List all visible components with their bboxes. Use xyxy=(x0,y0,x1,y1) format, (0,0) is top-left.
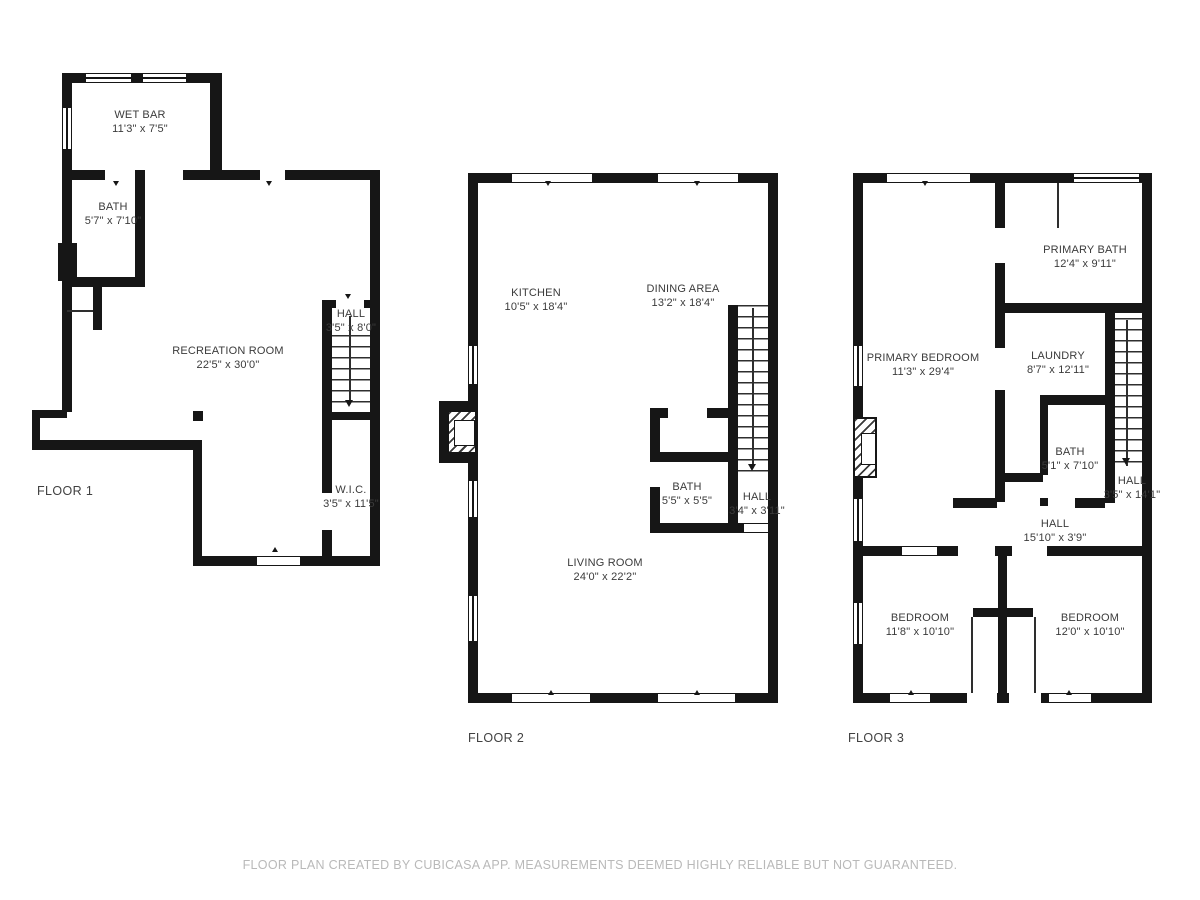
wall xyxy=(592,173,658,183)
room-dims: 5'5" x 5'5" xyxy=(662,495,712,507)
door-opening xyxy=(257,556,300,566)
chimney-floor1 xyxy=(58,243,77,281)
room-dims: 3'5" x 8'0" xyxy=(326,322,376,334)
wall xyxy=(995,173,1005,228)
stair-arrow-icon xyxy=(345,400,353,407)
room-dims: 13'2" x 18'4" xyxy=(652,297,715,309)
wall xyxy=(62,83,72,107)
room-dims: 24'0" x 22'2" xyxy=(574,571,637,583)
wall xyxy=(590,693,658,703)
door-tick xyxy=(272,547,278,552)
room-label-dining-area: DINING AREA13'2" x 18'4" xyxy=(646,282,719,310)
window xyxy=(468,345,478,385)
wall xyxy=(468,518,478,595)
fireplace-floor2 xyxy=(439,401,475,463)
stair-arrow-icon xyxy=(1122,458,1130,465)
door-tick xyxy=(548,690,554,695)
door-tick xyxy=(922,181,928,186)
wall xyxy=(970,173,1073,183)
wall xyxy=(768,173,778,703)
room-name: WET BAR xyxy=(114,109,165,121)
window xyxy=(468,595,478,642)
wall xyxy=(995,303,1152,313)
door-tick xyxy=(113,181,119,186)
window xyxy=(853,498,863,542)
closet-line xyxy=(971,617,973,693)
room-dims: 11'3" x 29'4" xyxy=(892,366,954,378)
floor-3-label: FLOOR 3 xyxy=(848,731,904,745)
door-opening xyxy=(744,523,768,533)
wall xyxy=(322,530,332,566)
wall xyxy=(1040,395,1115,405)
window xyxy=(62,107,72,150)
fireplace-floor3 xyxy=(853,417,877,478)
room-dims: 15'10" x 3'9" xyxy=(1024,532,1087,544)
room-dims: 3'5" x 14'1" xyxy=(1104,489,1161,501)
wall xyxy=(853,546,902,556)
wall xyxy=(300,556,380,566)
window xyxy=(1073,173,1140,183)
wall xyxy=(132,73,142,83)
staircase-floor3 xyxy=(1115,318,1142,472)
door-tick xyxy=(908,690,914,695)
wall xyxy=(973,608,1033,617)
window xyxy=(468,480,478,518)
wall xyxy=(953,498,997,508)
wall xyxy=(937,546,958,556)
door-tick xyxy=(266,181,272,186)
room-label-wic: W.I.C.3'5" x 11'5" xyxy=(323,483,379,511)
door-tick xyxy=(694,690,700,695)
room-name: HALL xyxy=(743,491,771,503)
room-dims: 5'1" x 7'10" xyxy=(1042,460,1099,472)
room-name: BATH xyxy=(98,201,127,213)
door-line xyxy=(67,310,93,312)
wall xyxy=(650,452,738,462)
room-label-bedroom-right: BEDROOM12'0" x 10'10" xyxy=(1055,611,1124,639)
room-label-primary-bath: PRIMARY BATH12'4" x 9'11" xyxy=(1043,243,1127,271)
door-line xyxy=(1057,183,1059,228)
wall xyxy=(1075,498,1105,508)
room-dims: 12'4" x 9'11" xyxy=(1054,258,1116,270)
wall xyxy=(183,170,260,180)
room-label-bath: BATH5'5" x 5'5" xyxy=(662,480,712,508)
wall xyxy=(995,313,1005,348)
stair-direction-line xyxy=(752,308,754,466)
room-name: PRIMARY BEDROOM xyxy=(867,352,980,364)
room-label-hall-corridor: HALL15'10" x 3'9" xyxy=(1024,517,1087,545)
wall xyxy=(322,412,380,420)
door-tick xyxy=(345,294,351,299)
door-tick xyxy=(694,181,700,186)
fireplace-core xyxy=(454,420,475,446)
room-name: PRIMARY BATH xyxy=(1043,244,1127,256)
room-name: BATH xyxy=(1055,446,1084,458)
room-label-hall: HALL3'4" x 3'11" xyxy=(729,490,785,518)
footer-disclaimer: FLOOR PLAN CREATED BY CUBICASA APP. MEAS… xyxy=(243,858,958,872)
room-label-primary-bedroom: PRIMARY BEDROOM11'3" x 29'4" xyxy=(867,351,980,379)
room-name: BEDROOM xyxy=(891,612,949,624)
room-name: W.I.C. xyxy=(335,484,366,496)
room-name: RECREATION ROOM xyxy=(172,345,284,357)
wall xyxy=(62,277,145,287)
room-name: HALL xyxy=(337,308,365,320)
door-tick xyxy=(545,181,551,186)
window xyxy=(853,602,863,645)
wall xyxy=(193,450,202,566)
room-label-bath: BATH5'7" x 7'10" xyxy=(85,200,142,228)
stair-arrow-icon xyxy=(748,464,756,471)
room-dims: 11'8" x 10'10" xyxy=(886,626,954,638)
wall xyxy=(853,173,887,183)
wall xyxy=(650,523,738,533)
wall xyxy=(62,170,105,180)
window xyxy=(853,345,863,387)
wall xyxy=(62,73,85,83)
wall xyxy=(1091,693,1152,703)
window xyxy=(142,73,187,83)
door-opening xyxy=(902,546,937,556)
wall xyxy=(930,693,967,703)
wall xyxy=(995,546,1012,556)
floor-plan-canvas: WET BAR11'3" x 7'5" BATH5'7" x 7'10" HAL… xyxy=(0,0,1200,900)
wall xyxy=(285,170,380,180)
room-label-laundry: LAUNDRY8'7" x 12'11" xyxy=(1027,349,1089,377)
wall xyxy=(32,410,67,418)
wall xyxy=(853,183,863,345)
room-label-recreation-room: RECREATION ROOM22'5" x 30'0" xyxy=(172,344,284,372)
wall xyxy=(468,693,512,703)
room-label-kitchen: KITCHEN10'5" x 18'4" xyxy=(505,286,568,314)
room-name: LAUNDRY xyxy=(1031,350,1085,362)
wall xyxy=(1040,498,1048,506)
room-label-hall-stairs: HALL3'5" x 14'1" xyxy=(1104,474,1161,502)
room-dims: 22'5" x 30'0" xyxy=(197,359,260,371)
stair-direction-line xyxy=(1126,320,1128,466)
room-label-hall: HALL3'5" x 8'0" xyxy=(326,307,376,335)
room-label-wet-bar: WET BAR11'3" x 7'5" xyxy=(112,108,168,136)
room-label-living-room: LIVING ROOM24'0" x 22'2" xyxy=(567,556,643,584)
room-dims: 12'0" x 10'10" xyxy=(1055,626,1124,638)
wall xyxy=(135,180,145,280)
door-tick xyxy=(1066,690,1072,695)
wall xyxy=(707,408,738,418)
wall xyxy=(468,183,478,345)
wall xyxy=(93,287,102,330)
wall xyxy=(995,473,1043,482)
room-name: HALL xyxy=(1118,475,1146,487)
room-name: HALL xyxy=(1041,518,1069,530)
window xyxy=(85,73,132,83)
room-dims: 8'7" x 12'11" xyxy=(1027,364,1089,376)
wall xyxy=(468,173,512,183)
room-name: DINING AREA xyxy=(646,283,719,295)
room-label-bath: BATH5'1" x 7'10" xyxy=(1042,445,1099,473)
wall xyxy=(997,693,1009,703)
room-dims: 3'4" x 3'11" xyxy=(729,505,785,517)
fireplace-core xyxy=(861,433,876,465)
room-dims: 3'5" x 11'5" xyxy=(323,498,379,510)
wall xyxy=(135,170,145,180)
room-dims: 5'7" x 7'10" xyxy=(85,215,142,227)
door-opening xyxy=(887,173,970,183)
wall xyxy=(32,440,202,450)
wall xyxy=(650,408,668,418)
wall xyxy=(1142,173,1152,703)
support-post xyxy=(193,411,203,421)
room-name: BATH xyxy=(672,481,701,493)
floor-1-label: FLOOR 1 xyxy=(37,484,93,498)
wall xyxy=(995,390,1005,452)
wall xyxy=(195,556,257,566)
room-name: KITCHEN xyxy=(511,287,561,299)
floor-2-label: FLOOR 2 xyxy=(468,731,524,745)
room-dims: 11'3" x 7'5" xyxy=(112,123,168,135)
wall xyxy=(998,556,1007,693)
wall xyxy=(1047,546,1152,556)
wall xyxy=(853,693,890,703)
wall xyxy=(1041,693,1049,703)
closet-line xyxy=(1034,617,1036,693)
wall xyxy=(735,693,778,703)
room-name: LIVING ROOM xyxy=(567,557,643,569)
wall xyxy=(210,73,222,180)
room-label-bedroom-left: BEDROOM11'8" x 10'10" xyxy=(886,611,954,639)
room-dims: 10'5" x 18'4" xyxy=(505,301,568,313)
room-name: BEDROOM xyxy=(1061,612,1119,624)
door-opening xyxy=(512,173,592,183)
